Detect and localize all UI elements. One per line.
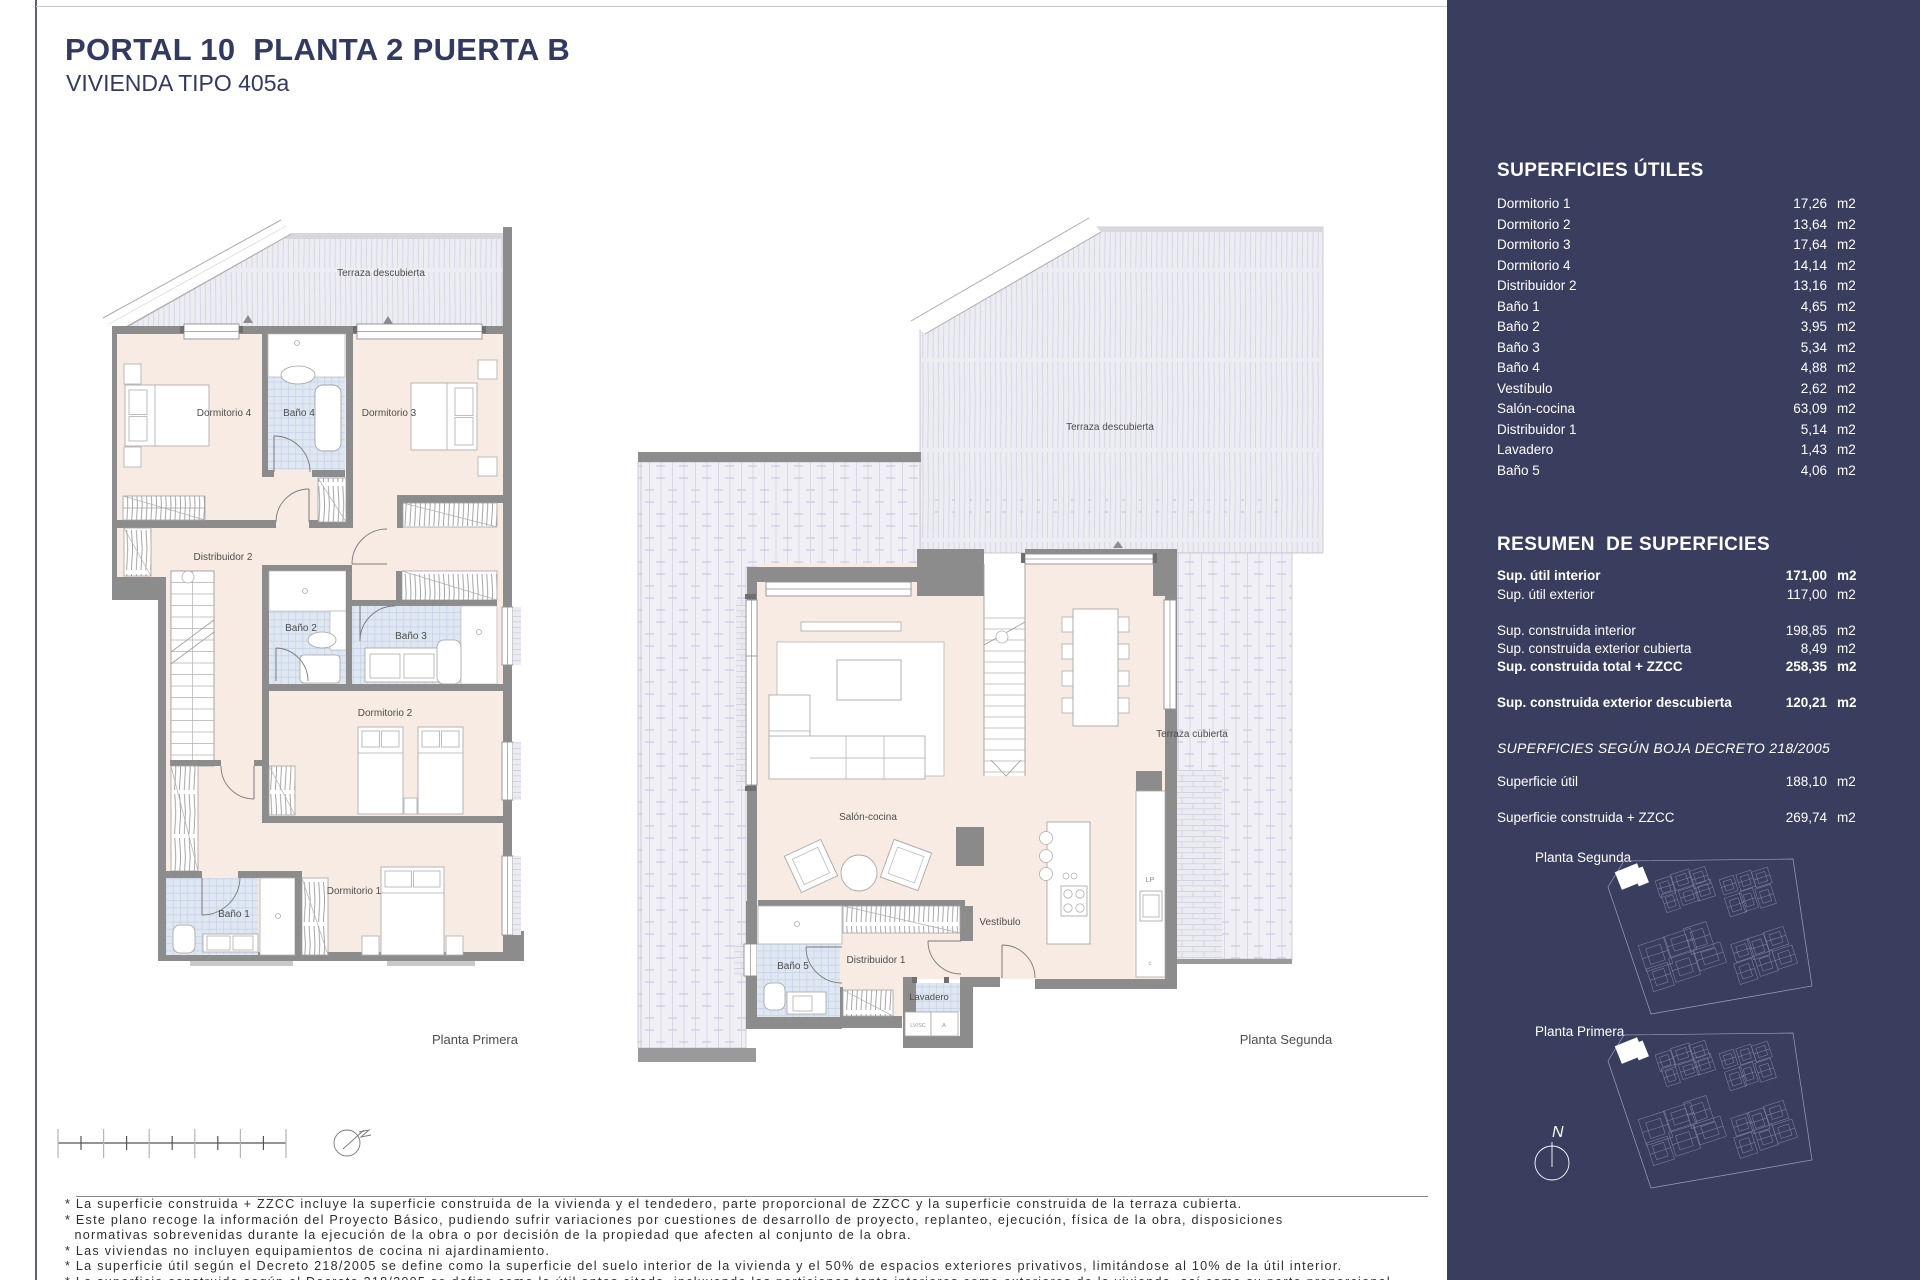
svg-text:Baño 5: Baño 5	[777, 961, 809, 972]
svg-text:Baño 1: Baño 1	[218, 909, 250, 920]
svg-text:LP: LP	[1146, 877, 1155, 884]
svg-text:Lavadero: Lavadero	[909, 992, 949, 1003]
svg-text:Terraza cubierta: Terraza cubierta	[1156, 729, 1228, 740]
svg-text:Distribuidor 1: Distribuidor 1	[847, 955, 906, 966]
svg-text:Dormitorio 2: Dormitorio 2	[358, 708, 413, 719]
svg-text:A: A	[942, 1023, 946, 1029]
svg-text:Planta Primera: Planta Primera	[432, 1032, 519, 1047]
svg-text:Distribuidor 2: Distribuidor 2	[194, 552, 253, 563]
svg-text:Baño 3: Baño 3	[395, 631, 427, 642]
svg-text:Dormitorio 1: Dormitorio 1	[327, 886, 382, 897]
svg-text:Vestíbulo: Vestíbulo	[979, 917, 1021, 928]
svg-text:Planta Segunda: Planta Segunda	[1240, 1032, 1333, 1047]
svg-text:Baño 2: Baño 2	[285, 623, 317, 634]
svg-text:Salón-cocina: Salón-cocina	[839, 812, 897, 823]
svg-text:N: N	[1552, 1124, 1564, 1141]
svg-text:Dormitorio 3: Dormitorio 3	[362, 408, 417, 419]
svg-text:c: c	[1149, 961, 1152, 967]
svg-text:Terraza descubierta: Terraza descubierta	[1066, 422, 1154, 433]
svg-text:Baño 4: Baño 4	[283, 408, 315, 419]
svg-text:LV/SC: LV/SC	[910, 1023, 926, 1029]
svg-text:Terraza descubierta: Terraza descubierta	[337, 268, 425, 279]
svg-text:Dormitorio 4: Dormitorio 4	[197, 408, 252, 419]
